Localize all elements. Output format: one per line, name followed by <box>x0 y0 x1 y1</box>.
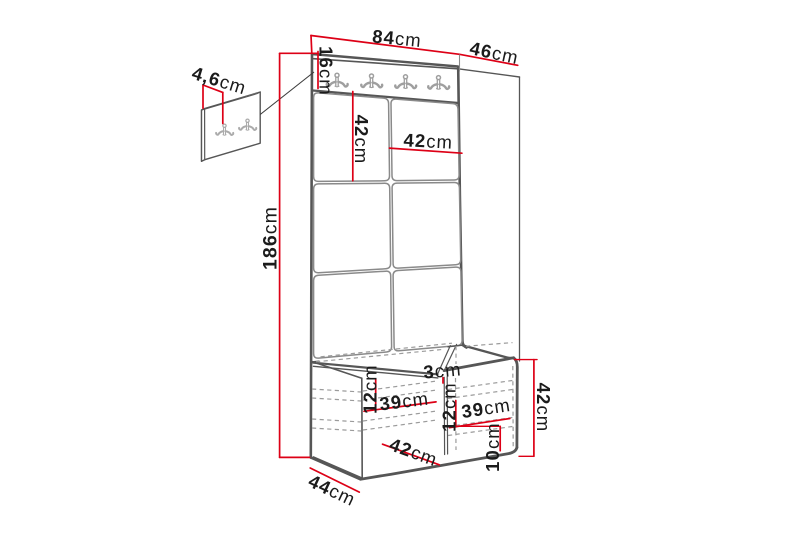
svg-text:16cm: 16cm <box>316 46 337 96</box>
svg-text:39cm: 39cm <box>378 388 430 415</box>
svg-text:46cm: 46cm <box>468 37 521 68</box>
svg-text:4,6cm: 4,6cm <box>190 62 250 98</box>
svg-text:12cm: 12cm <box>359 364 380 414</box>
svg-text:42cm: 42cm <box>533 383 554 433</box>
svg-text:84cm: 84cm <box>371 25 422 51</box>
svg-text:12cm: 12cm <box>439 382 460 432</box>
svg-text:3cm: 3cm <box>422 358 462 382</box>
svg-text:39cm: 39cm <box>460 394 512 422</box>
svg-text:186cm: 186cm <box>260 206 282 270</box>
svg-text:42cm: 42cm <box>351 115 372 165</box>
svg-text:42cm: 42cm <box>403 129 454 153</box>
svg-text:42cm: 42cm <box>387 434 441 471</box>
svg-text:10cm: 10cm <box>482 422 503 472</box>
